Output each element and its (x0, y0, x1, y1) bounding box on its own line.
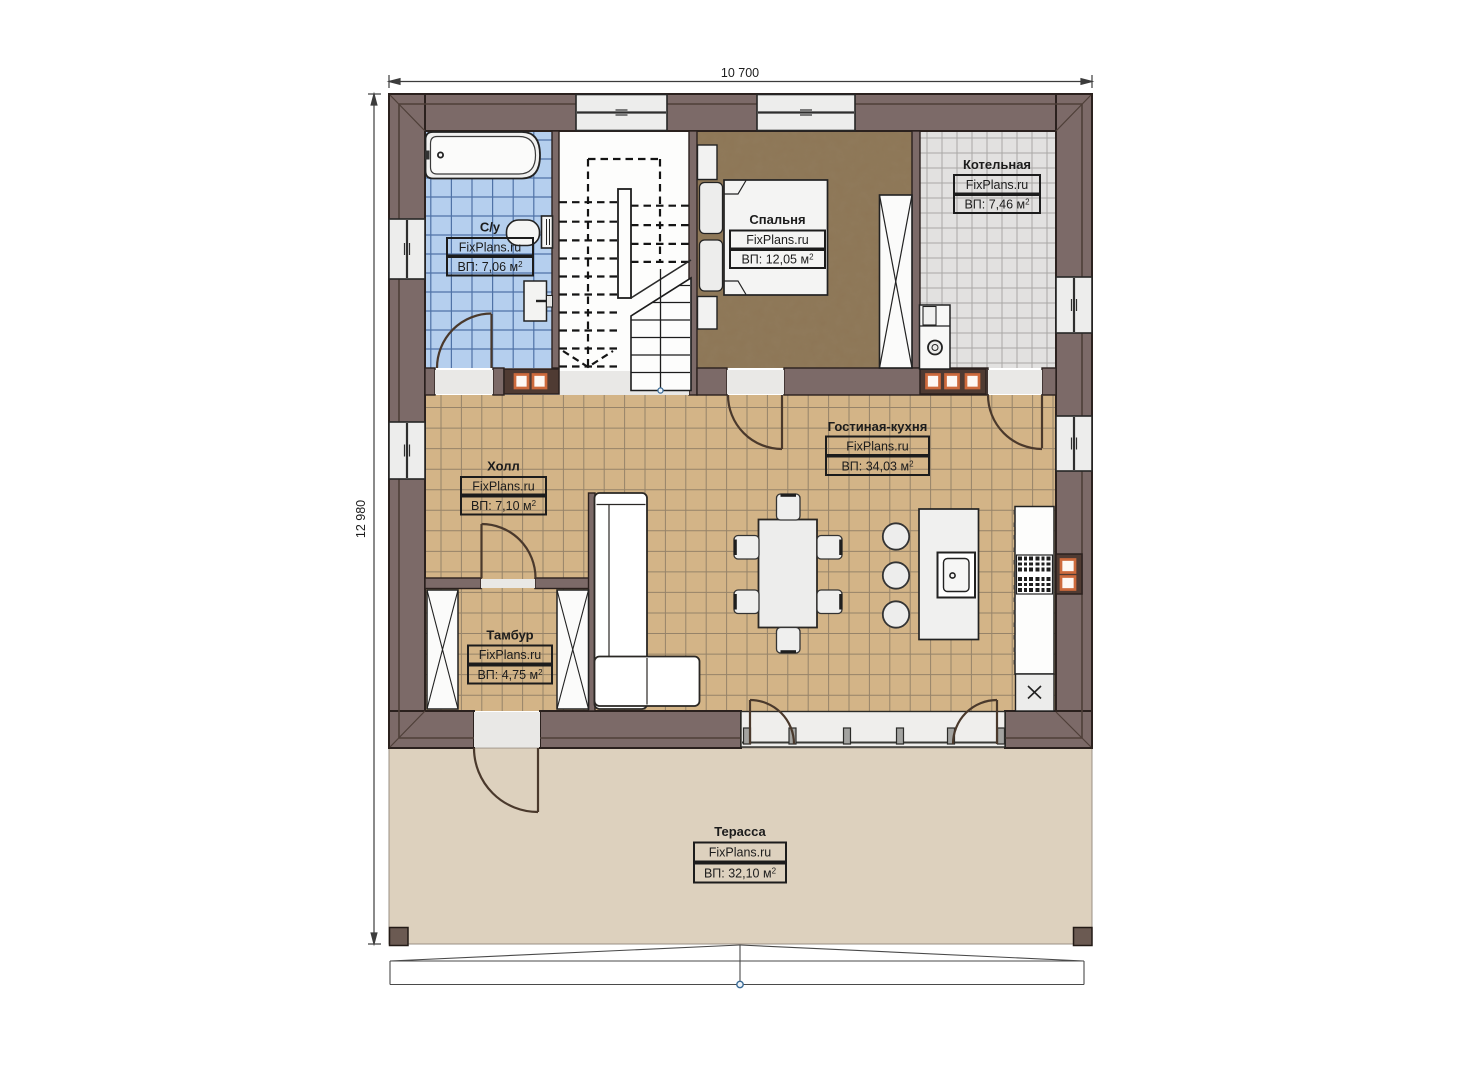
svg-text:ВП: 32,10 м2: ВП: 32,10 м2 (704, 867, 777, 881)
svg-text:Холл: Холл (487, 459, 520, 474)
svg-text:12 980: 12 980 (354, 500, 368, 538)
svg-text:ВП: 7,06 м2: ВП: 7,06 м2 (457, 260, 523, 274)
svg-text:10 700: 10 700 (721, 66, 759, 80)
svg-text:Спальня: Спальня (749, 212, 805, 227)
svg-text:ВП: 12,05 м2: ВП: 12,05 м2 (741, 253, 814, 267)
svg-text:FixPlans.ru: FixPlans.ru (846, 439, 909, 453)
svg-text:ВП: 4,75 м2: ВП: 4,75 м2 (477, 668, 543, 682)
svg-text:FixPlans.ru: FixPlans.ru (479, 648, 542, 662)
svg-text:ВП: 7,10 м2: ВП: 7,10 м2 (471, 499, 537, 513)
svg-text:FixPlans.ru: FixPlans.ru (472, 479, 535, 493)
svg-text:Терасса: Терасса (714, 824, 766, 839)
svg-text:FixPlans.ru: FixPlans.ru (966, 178, 1029, 192)
svg-text:FixPlans.ru: FixPlans.ru (746, 233, 809, 247)
svg-text:Тамбур: Тамбур (486, 628, 533, 643)
svg-text:ВП: 7,46 м2: ВП: 7,46 м2 (964, 198, 1030, 212)
svg-text:ВП: 34,03 м2: ВП: 34,03 м2 (841, 459, 914, 473)
svg-text:Гостиная-кухня: Гостиная-кухня (828, 419, 928, 434)
svg-text:FixPlans.ru: FixPlans.ru (709, 846, 772, 860)
svg-text:Котельная: Котельная (963, 157, 1031, 172)
svg-text:С/у: С/у (480, 220, 501, 235)
svg-text:FixPlans.ru: FixPlans.ru (459, 240, 522, 254)
